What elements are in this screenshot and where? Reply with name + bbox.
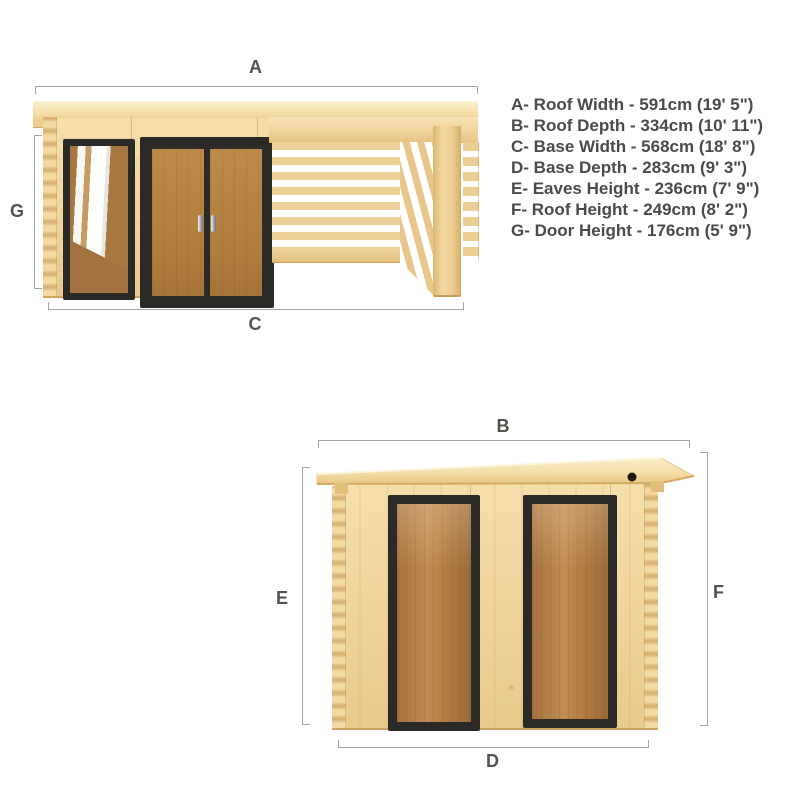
side-window-glass	[532, 504, 608, 719]
dim-label-e: E	[276, 589, 288, 607]
dim-label-d: D	[338, 752, 647, 770]
eave-bracket	[335, 483, 348, 494]
roof-knot-dot-icon	[628, 473, 637, 482]
dim-line-roof-depth	[318, 440, 690, 448]
side-elevation-drawing: B	[0, 0, 800, 800]
side-pent-roof	[313, 450, 698, 502]
product-dimensions-diagram: A	[0, 0, 800, 800]
dim-line-roof-height	[700, 452, 708, 726]
dim-label-f: F	[713, 583, 724, 601]
eave-bracket	[651, 481, 664, 492]
dim-line-eaves-height	[302, 467, 310, 725]
side-window-glass	[397, 504, 471, 722]
side-window-left	[388, 495, 480, 731]
dim-line-base-depth	[338, 740, 649, 748]
side-window-right	[523, 495, 617, 728]
dim-label-b: B	[318, 417, 688, 435]
